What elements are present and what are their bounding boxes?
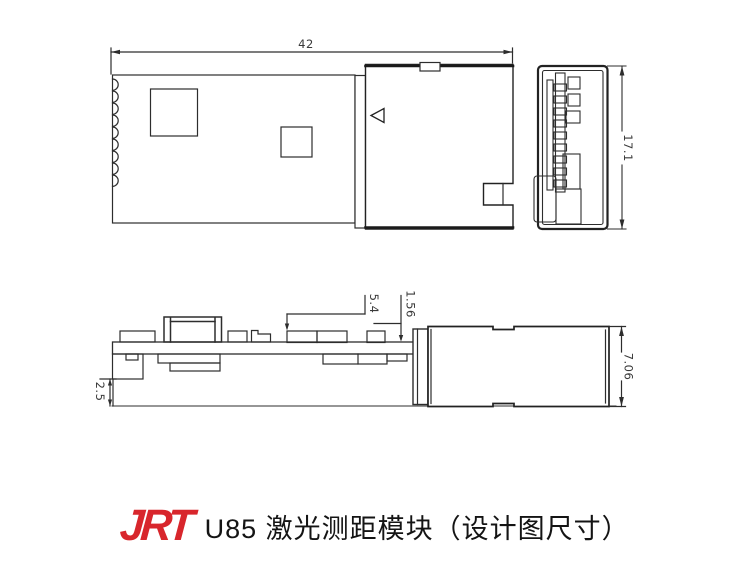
dim-arrow-icon xyxy=(620,66,625,76)
top-view: 42 xyxy=(111,37,513,229)
pcb-side-bar xyxy=(113,342,428,354)
dim-label-end-height: 17.1 xyxy=(621,134,635,162)
dim-arrow-icon xyxy=(620,220,625,230)
technical-drawing: 42 xyxy=(0,0,750,480)
drawing-page: 42 xyxy=(0,0,750,582)
dim-end-height: 17.1 xyxy=(608,66,636,229)
caption: JRT U85 激光测距模块（设计图尺寸） xyxy=(0,506,750,546)
pcb-outline xyxy=(113,75,356,223)
dim-arrow-icon xyxy=(108,379,112,386)
dim-label-2-5: 2.5 xyxy=(93,382,107,402)
housing-flange-side xyxy=(413,329,428,405)
dim-length-5-4: 5.4 xyxy=(285,294,381,331)
dim-label-5-4: 5.4 xyxy=(367,294,381,314)
dim-height-7-06: 7.06 xyxy=(609,327,636,407)
dim-arrow-icon xyxy=(111,50,120,54)
top-components xyxy=(120,317,385,343)
dim-arrow-icon xyxy=(399,335,403,342)
housing-top-notch xyxy=(420,63,440,72)
dim-arrow-icon xyxy=(285,324,289,331)
end-view: 17.1 xyxy=(534,66,635,229)
laser-housing-side xyxy=(428,327,609,407)
caption-title: U85 激光测距模块（设计图尺寸） xyxy=(205,507,630,546)
end-housing-outline xyxy=(538,66,608,229)
dim-label-width: 42 xyxy=(298,37,314,51)
side-view: 5.4 1.56 2.5 xyxy=(93,290,636,406)
dim-label-1-56: 1.56 xyxy=(404,290,418,318)
dim-arrow-icon xyxy=(619,327,624,337)
dim-arrow-icon xyxy=(619,397,624,407)
dim-arrow-icon xyxy=(108,400,112,407)
housing-flange-top xyxy=(355,76,366,229)
laser-housing-top xyxy=(366,65,514,230)
jrt-logo: JRT xyxy=(119,506,196,546)
bottom-components xyxy=(113,354,408,406)
dim-arrow-icon xyxy=(504,50,513,54)
connector-side xyxy=(164,317,222,342)
dim-label-7-06: 7.06 xyxy=(622,353,636,381)
